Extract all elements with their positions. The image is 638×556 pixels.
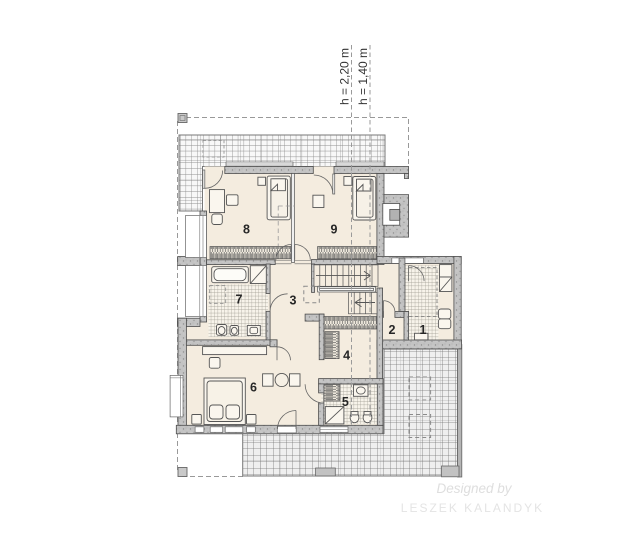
- svg-text:9: 9: [331, 223, 338, 237]
- svg-text:h = 1,40 m: h = 1,40 m: [356, 48, 370, 105]
- svg-text:LESZEK KALANDYK: LESZEK KALANDYK: [401, 501, 544, 515]
- svg-text:6: 6: [250, 381, 257, 395]
- svg-text:7: 7: [236, 293, 243, 307]
- svg-text:Designed by: Designed by: [436, 481, 512, 496]
- svg-text:1: 1: [420, 323, 427, 337]
- svg-text:4: 4: [343, 349, 350, 363]
- svg-text:h = 2,20 m: h = 2,20 m: [338, 48, 352, 105]
- svg-text:8: 8: [243, 223, 250, 237]
- svg-text:5: 5: [342, 395, 349, 409]
- svg-text:2: 2: [389, 323, 396, 337]
- svg-text:3: 3: [290, 294, 297, 308]
